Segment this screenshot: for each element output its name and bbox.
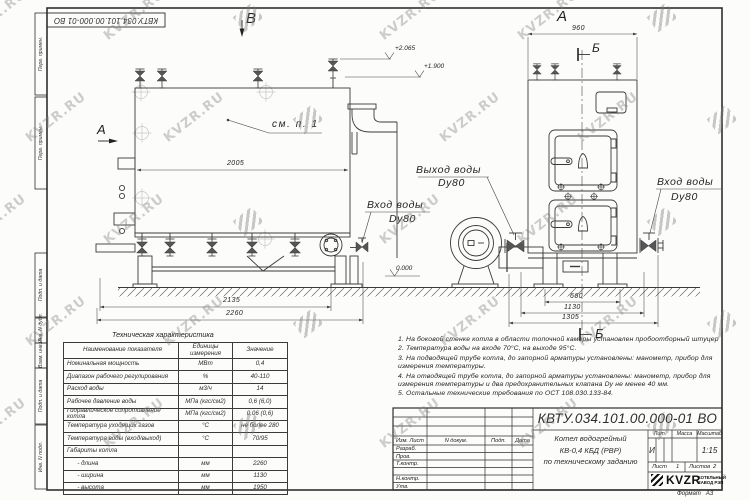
spec-row: Габариты котла <box>64 445 287 457</box>
frame-column-label: Подп. и дата <box>35 368 47 424</box>
tech-note: 3. На подводящей трубе котла, до запорно… <box>398 355 724 372</box>
frame-column-label: Взам. инв. N <box>35 343 47 368</box>
spec-row: Температура уходящих газов°Сне более 280 <box>64 420 287 432</box>
tb-sheets-label: Листов <box>689 464 710 470</box>
dim-side-length: 2005 <box>227 160 244 167</box>
spec-cell-value <box>232 446 287 457</box>
spec-cell-value: 2260 <box>232 458 287 469</box>
view-a-title: А <box>557 8 568 25</box>
spec-cell-name: Номинальная мощность <box>64 359 178 370</box>
tb-mass-label: Масса <box>672 431 697 437</box>
spec-cell-unit <box>178 446 232 457</box>
spec-row: - длинамм2260 <box>64 457 287 469</box>
tb-col-ndokum: N докум. <box>427 438 485 444</box>
leader-lines <box>227 119 721 243</box>
section-b-top-label: Б <box>592 41 600 55</box>
spec-cell-value: 0,4 <box>232 359 287 370</box>
registration-marks <box>132 83 276 249</box>
inlet-front-size-label: Dy80 <box>671 191 698 203</box>
tb-lit-value: И <box>648 446 656 455</box>
outlet-label: Выход воды <box>416 164 481 176</box>
tb-sign-prov: Пров. <box>396 454 411 460</box>
spec-cell-value: 0,06 (0,6) <box>232 409 287 420</box>
spec-cell-unit: °С <box>178 433 232 444</box>
level-marks <box>340 53 424 277</box>
frame-column-label: Перв. примен. <box>35 97 47 189</box>
spec-cell-unit: мм <box>178 458 232 469</box>
spec-row: Температура воды (вход/выход)°С70/95 <box>64 432 287 444</box>
spec-cell-name: - высота <box>64 483 178 494</box>
spec-cell-value: 1950 <box>232 483 287 494</box>
spec-cell-unit: МПа (кгс/см2) <box>178 396 232 407</box>
level-top: +2.065 <box>395 45 415 52</box>
tb-sign-razrab: Разраб. <box>396 446 416 452</box>
spec-cell-value: 1130 <box>232 471 287 482</box>
dim-side-total: 2260 <box>226 310 243 317</box>
outlet-size-label: Dy80 <box>438 177 465 189</box>
spec-table: Наименование показателя Единицы измерени… <box>63 342 288 495</box>
dim-front-base: 660 <box>570 293 583 300</box>
spec-cell-name: Рабочее давление воды <box>64 396 178 407</box>
tb-sheet-label: Лист <box>652 464 667 470</box>
tb-col-izm-list: Изм. Лист <box>393 438 427 444</box>
spec-cell-name: Температура уходящих газов <box>64 421 178 432</box>
spec-cell-value: 0,6 (6,0) <box>232 396 287 407</box>
section-a-arrow-label: А <box>97 122 106 137</box>
frame-column-label: Подп. и дата <box>35 253 47 317</box>
dim-side-base: 2135 <box>223 297 240 304</box>
spec-cell-value: 70/95 <box>232 433 287 444</box>
spec-cell-name: - ширина <box>64 471 178 482</box>
tb-sign-nkontr: Н.контр. <box>396 476 420 482</box>
kvzr-logo-icon <box>651 474 663 486</box>
tech-note: 4. На отводящей трубе котла, до запорной… <box>398 373 724 390</box>
spec-row: Диапазон рабочего регулирования%40-110 <box>64 370 287 382</box>
product-title-line1: Котел водогрейный <box>554 433 626 445</box>
level-mid: +1.900 <box>424 63 444 70</box>
tb-sign-utv: Утв. <box>396 484 409 490</box>
spec-cell-unit: МПа (кгс/см2) <box>178 409 232 420</box>
inlet-front-label: Вход воды <box>657 176 713 188</box>
spec-cell-name: - длина <box>64 458 178 469</box>
spec-row: - высотамм1950 <box>64 482 287 494</box>
kvzr-logo-text: KVZR <box>666 473 701 487</box>
spec-header-unit: Единицы измерения <box>178 343 232 358</box>
spec-cell-unit: % <box>178 371 232 382</box>
spec-cell-unit: мм <box>178 471 232 482</box>
tb-sign-tkontr: Т.контр. <box>396 461 419 467</box>
tb-sheet-value: 1 <box>676 464 679 470</box>
product-title-line2: КВ-0,4 КБД (РВР) <box>560 445 622 457</box>
dim-front-mid: 1130 <box>564 304 581 311</box>
spec-cell-unit: МВт <box>178 359 232 370</box>
frame-column-label: Перв. примен. <box>35 13 47 95</box>
tb-sheets-value: 2 <box>713 464 716 470</box>
spec-row: Гидравлическое сопротивление котлаМПа (к… <box>64 408 287 420</box>
dimension-lines <box>97 34 658 327</box>
spec-row: - ширинамм1130 <box>64 470 287 482</box>
spec-row: Рабочее давление водыМПа (кгс/см2)0,6 (6… <box>64 395 287 407</box>
spec-cell-value: не более 280 <box>232 421 287 432</box>
company-name-line2: ЗАВОД РЭП <box>698 480 726 485</box>
format-note: Формат А3 <box>677 491 713 497</box>
notes-block: 1. На боковой стенке котла в области топ… <box>398 336 724 400</box>
dim-front-width: 960 <box>572 25 585 32</box>
drawing-sheet: КВТУ.034.101.00.000-01 ВО Перв. примен.П… <box>0 0 750 500</box>
spec-row: Номинальная мощностьМВт0,4 <box>64 358 287 370</box>
dim-front-total: 1305 <box>562 314 579 321</box>
spec-cell-value: 40-110 <box>232 371 287 382</box>
see-note-label: см. п. 1 <box>272 119 319 130</box>
tb-scale-value: 1:15 <box>697 446 722 455</box>
company-name: КОТЕЛЬНЫЙ ЗАВОД РЭП <box>698 475 726 485</box>
inlet-side-label: Вход воды <box>367 199 423 211</box>
spec-cell-value: 14 <box>232 384 287 395</box>
spec-table-header: Наименование показателя Единицы измерени… <box>64 343 287 358</box>
tb-lit-label: Лит. <box>648 431 672 437</box>
tb-col-podp: Подп. <box>485 438 512 444</box>
tb-col-data: Дата <box>512 438 533 444</box>
inlet-side-size-label: Dy80 <box>389 213 416 225</box>
ground-line <box>118 288 700 297</box>
tech-note: 1. На боковой стенке котла в области топ… <box>398 336 724 344</box>
top-corner-stamp: КВТУ.034.101.00.000-01 ВО <box>47 13 165 27</box>
spec-cell-name: Диапазон рабочего регулирования <box>64 371 178 382</box>
tech-note: 5. Остальные технические требования по О… <box>398 390 724 398</box>
spec-header-name: Наименование показателя <box>64 343 178 358</box>
view-b-label: В <box>246 10 257 27</box>
spec-cell-unit: мм <box>178 483 232 494</box>
spec-cell-name: Гидравлическое сопротивление котла <box>64 409 178 420</box>
product-title: Котел водогрейный КВ-0,4 КБД (РВР) по те… <box>534 433 647 488</box>
level-zero: 0.000 <box>396 265 412 272</box>
spec-cell-unit: °С <box>178 421 232 432</box>
doc-number: КВТУ.034.101.00.000-01 ВО <box>535 409 720 429</box>
spec-table-title: Техническая характеристика <box>112 330 214 339</box>
spec-cell-name: Температура воды (вход/выход) <box>64 433 178 444</box>
spec-cell-name: Расход воды <box>64 384 178 395</box>
product-title-line3: по техническому заданию <box>544 456 638 468</box>
spec-cell-name: Габариты котла <box>64 446 178 457</box>
spec-header-value: Значение <box>232 343 287 358</box>
spec-cell-unit: м3/ч <box>178 384 232 395</box>
spec-row: Расход водым3/ч14 <box>64 383 287 395</box>
frame-column-label: Инв. N подл. <box>35 425 47 489</box>
tb-scale-label: Масштаб <box>697 431 722 437</box>
tech-note: 2. Температура воды на входе 70°С, на вы… <box>398 345 724 353</box>
